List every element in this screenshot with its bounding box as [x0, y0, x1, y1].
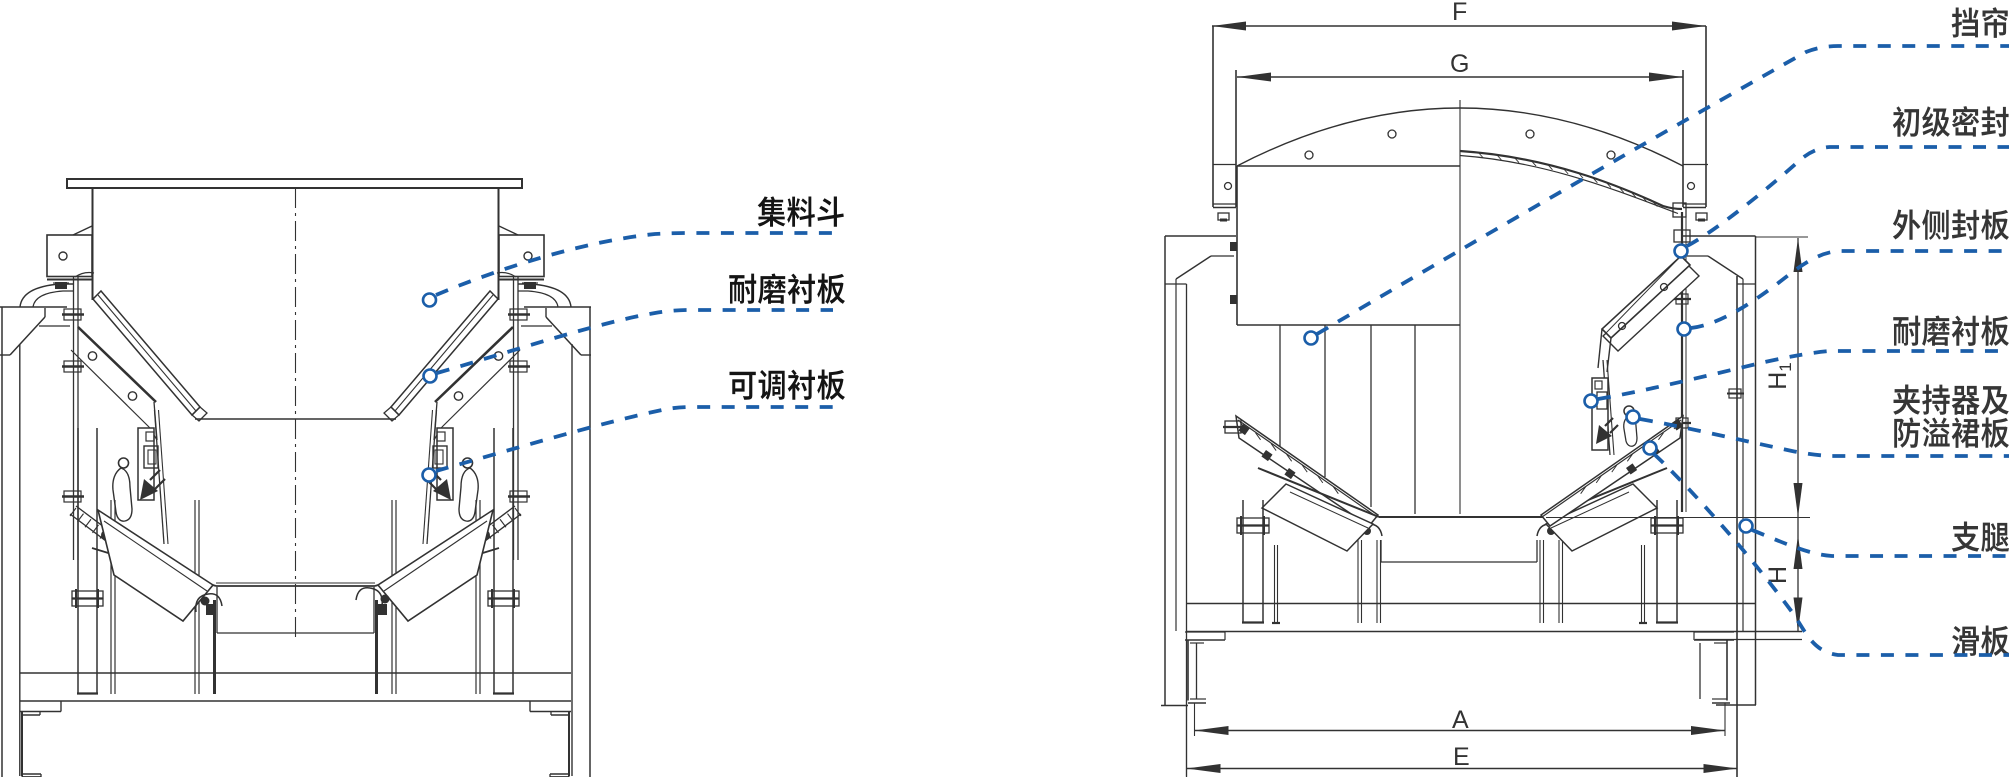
svg-text:H: H — [1764, 566, 1792, 584]
svg-text:E: E — [1453, 743, 1470, 771]
svg-text:A: A — [1452, 706, 1469, 734]
svg-text:F: F — [1452, 0, 1467, 26]
svg-text:G: G — [1450, 50, 1469, 78]
